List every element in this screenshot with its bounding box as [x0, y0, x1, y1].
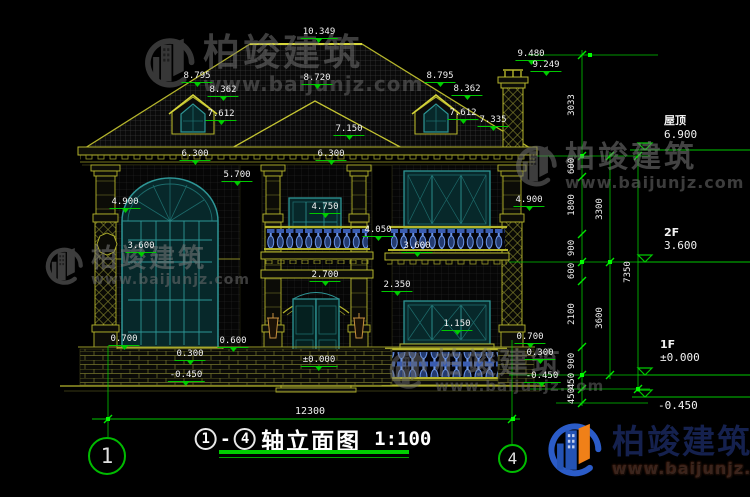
- dimension-chain-label: 1800: [567, 194, 577, 216]
- spot-elevation-label: 2.700: [309, 270, 340, 282]
- spot-elevation-label: ±0.000: [301, 355, 338, 367]
- annotation-overlay: 10.3499.4809.2498.7958.3627.6128.7208.79…: [0, 0, 750, 497]
- dimension-chain-label: 3300: [595, 198, 605, 220]
- dimension-chain-label: 2100: [567, 303, 577, 325]
- spot-elevation-label: 5.700: [221, 170, 252, 182]
- spot-elevation-label: 8.362: [451, 84, 482, 96]
- level-name: 1F: [660, 338, 700, 351]
- spot-elevation-label: 8.362: [207, 85, 238, 97]
- spot-elevation-label: 7.612: [447, 108, 478, 120]
- spot-elevation-label: 0.300: [524, 348, 555, 360]
- spot-elevation-label: 4.900: [513, 195, 544, 207]
- axis-bubble: 4: [498, 444, 527, 473]
- dimension-chain-label: 7350: [623, 261, 633, 283]
- level-value: -0.450: [658, 399, 698, 412]
- spot-elevation-label: -0.450: [168, 370, 205, 382]
- spot-elevation-label: 7.612: [205, 109, 236, 121]
- level-marker-label: 1F±0.000: [660, 338, 700, 364]
- spot-elevation-label: 7.335: [477, 115, 508, 127]
- spot-elevation-label: 9.249: [530, 60, 561, 72]
- spot-elevation-label: 6.300: [179, 149, 210, 161]
- spot-elevation-label: 0.600: [217, 336, 248, 348]
- level-value: 3.600: [664, 239, 697, 252]
- spot-elevation-label: 0.700: [108, 334, 139, 346]
- spot-elevation-label: 8.795: [424, 71, 455, 83]
- dimension-chain-label: 450: [567, 373, 577, 389]
- spot-elevation-label: 8.795: [181, 71, 212, 83]
- dimension-chain-label: 900: [567, 240, 577, 256]
- level-name: 2F: [664, 226, 697, 239]
- dimension-chain-label: 3033: [567, 94, 577, 116]
- cad-elevation-screenshot: 柏竣建筑 www.baijunjz.com 柏竣建筑 www.baijunjz.…: [0, 0, 750, 497]
- spot-elevation-label: 6.300: [315, 149, 346, 161]
- dimension-chain-label: 450: [567, 388, 577, 404]
- spot-elevation-label: 7.150: [333, 124, 364, 136]
- spot-elevation-label: 8.720: [301, 73, 332, 85]
- axis-bubble: 1: [88, 437, 126, 475]
- spot-elevation-label: 2.350: [381, 280, 412, 292]
- level-marker-label: -0.450: [658, 399, 698, 412]
- level-name: 屋顶: [664, 112, 697, 128]
- spot-elevation-label: 4.750: [309, 202, 340, 214]
- spot-elevation-label: -0.450: [524, 371, 561, 383]
- dimension-chain-label: 900: [567, 353, 577, 369]
- spot-elevation-label: 4.900: [109, 197, 140, 209]
- spot-elevation-label: 4.050: [362, 225, 393, 237]
- spot-elevation-label: 3.600: [401, 241, 432, 253]
- level-marker-label: 屋顶6.900: [664, 112, 697, 141]
- spot-elevation-label: 1.150: [441, 319, 472, 331]
- spot-elevation-label: 3.600: [125, 241, 156, 253]
- spot-elevation-label: 0.700: [514, 332, 545, 344]
- level-value: 6.900: [664, 128, 697, 141]
- dimension-chain-label: 3600: [595, 307, 605, 329]
- dimension-chain-label: 600: [567, 263, 577, 279]
- dimension-chain-label: 600: [567, 158, 577, 174]
- level-value: ±0.000: [660, 351, 700, 364]
- spot-elevation-label: 0.300: [174, 349, 205, 361]
- level-marker-label: 2F3.600: [664, 226, 697, 252]
- spot-elevation-label: 10.349: [301, 27, 338, 39]
